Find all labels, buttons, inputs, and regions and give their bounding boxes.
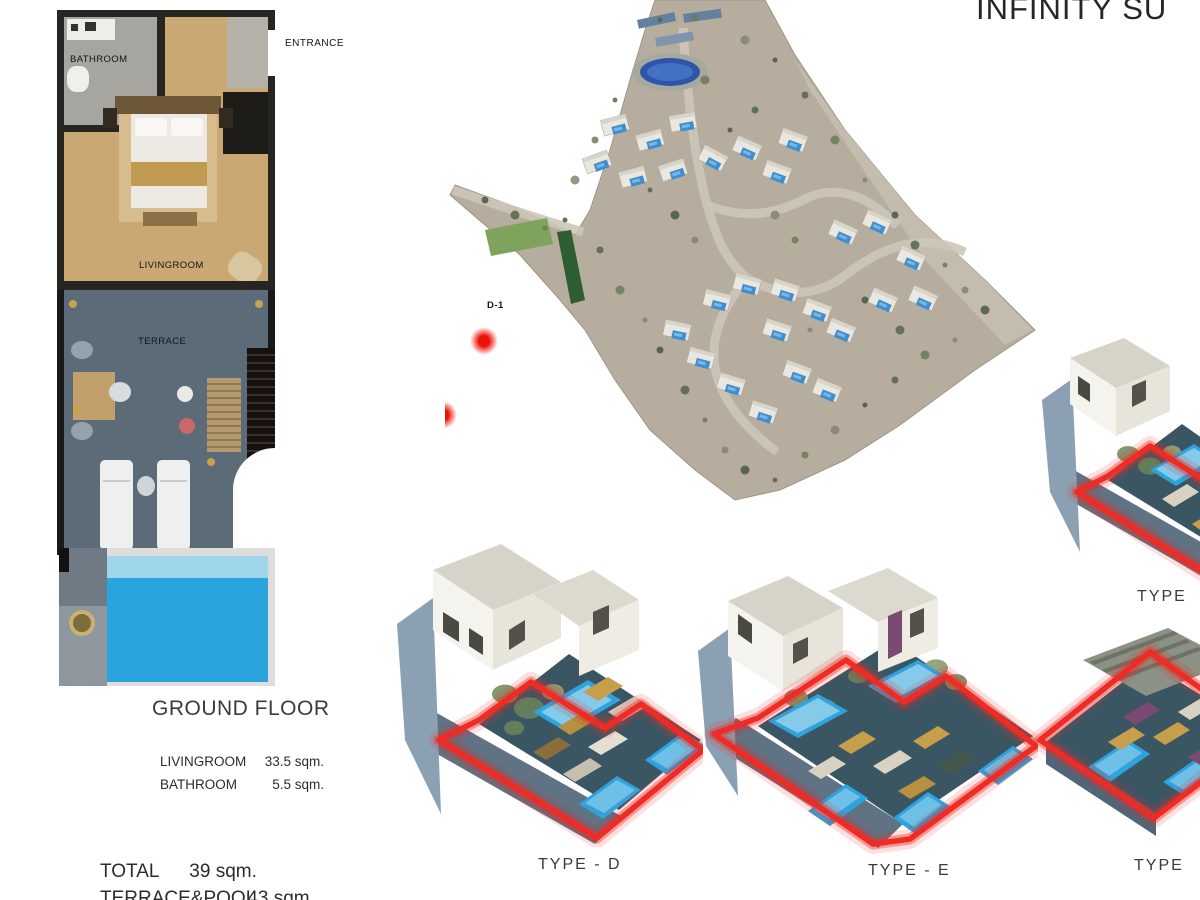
tree [616,286,625,295]
nightstand-right [219,108,233,128]
area-value: 33.5 sqm. [262,750,324,773]
area-label: BATHROOM [160,773,262,796]
tree [808,328,813,333]
tree [728,128,733,133]
tree [892,377,899,384]
bed-throw [131,162,207,186]
sink [67,19,115,40]
ground-floor-caption: GROUND FLOOR [152,697,330,721]
pool-frame-corner [59,548,69,572]
tree [571,176,580,185]
tree [703,418,708,423]
tree [896,326,905,335]
brochure-page: INFINITY SU [0,0,1200,900]
tree [701,76,710,85]
tree [643,318,648,323]
tree [563,218,568,223]
tree [943,263,948,268]
total-value: 39 sqm. [189,861,257,882]
type-right-bottom-rendering [1028,622,1200,857]
tree [592,137,599,144]
terrace-sliding-wall [57,281,275,290]
terrace-label: TERRACE [138,336,186,347]
tree [771,211,780,220]
tree [658,18,663,23]
tree [597,247,604,254]
wall-lamp [73,406,81,414]
area-value: 5.5 sqm. [262,773,324,796]
tree [671,211,680,220]
tree [722,447,729,454]
ground-floor-plan: BATHROOM ENTRANCE LIVINGROOM TERRACE [57,10,275,686]
tree [511,211,520,220]
tree [692,237,699,244]
pillow [135,118,167,136]
greenery [504,721,524,735]
entrance-door-opening [268,30,275,76]
tree [752,107,759,114]
area-row: LIVINGROOM 33.5 sqm. [160,750,324,773]
wall-lamp [255,300,263,308]
wall-lamp [207,458,215,466]
unit-marker-label: D-1 [487,300,504,311]
area-label: LIVINGROOM [160,750,262,773]
tree [862,297,869,304]
tree [773,478,778,483]
pouf [179,418,195,434]
site-plan-aerial: D-1E-1E-2F-1F-2F-3 [445,0,1045,525]
dining-chair [71,422,93,440]
terrace-pool-row: TERRACE&POOL 43 sqm. [100,888,315,900]
dining-chair [109,382,131,402]
villa-structure [888,610,902,659]
bathroom-label: BATHROOM [70,54,127,65]
wooden-deck [207,378,241,452]
terrace-pool-value: 43 sqm. [247,888,315,900]
terrace-wall-left [57,290,64,555]
tree [692,15,699,22]
toilet [67,66,89,92]
type-e-label: TYPE - E [868,862,951,880]
tree [863,178,868,183]
main-pool-inner [647,63,693,81]
tree [953,338,958,343]
tree [543,226,548,231]
pillow [171,118,203,136]
villa-e-art [688,556,1038,856]
type-right-bottom-label: TYPE [1134,857,1184,875]
tree [681,386,690,395]
sun-lounger [100,460,133,550]
livingroom-label: LIVINGROOM [139,260,204,271]
type-d-rendering [383,542,703,847]
sun-lounger [157,460,190,550]
wall-lamp [69,300,77,308]
dining-chair [71,341,93,359]
total-label: TOTAL [100,861,184,883]
unit-marker [478,335,490,347]
fountain [69,610,95,636]
area-table: LIVINGROOM 33.5 sqm. BATHROOM 5.5 sqm. [160,750,324,796]
tree [863,403,868,408]
tree [831,136,840,145]
villa-d-art [383,542,703,847]
nightstand-left [103,108,117,128]
entrance-label: ENTRANCE [285,38,344,49]
tree [648,188,653,193]
tree [773,58,778,63]
tree [792,237,799,244]
type-e-rendering [688,556,1038,856]
tree [482,197,489,204]
type-right-top-label: TYPE [1137,588,1187,606]
villa-rt-art [1032,334,1200,584]
entry-tile [227,17,268,88]
tree [981,306,990,315]
bed-bench [143,212,197,226]
terrace-pool-label: TERRACE&POOL [100,888,242,900]
type-right-top-rendering [1032,334,1200,584]
tree [657,347,664,354]
total-row: TOTAL 39 sqm. [100,861,257,883]
tree [613,98,618,103]
type-d-label: TYPE - D [538,856,622,874]
tree [741,36,750,45]
bed-headboard [115,96,221,114]
pool-shallow-shelf [107,556,268,578]
tree [802,452,809,459]
tree [921,351,930,360]
area-row: BATHROOM 5.5 sqm. [160,773,324,796]
site-plan: D-1E-1E-2F-1F-2F-3 [445,0,1045,525]
tree [741,466,750,475]
tree [831,426,840,435]
tree [962,287,969,294]
tree [911,241,920,250]
villa-rb-art [1028,622,1200,857]
tree [892,212,899,219]
tree [802,92,809,99]
side-table [137,476,155,496]
pouf [177,386,193,402]
